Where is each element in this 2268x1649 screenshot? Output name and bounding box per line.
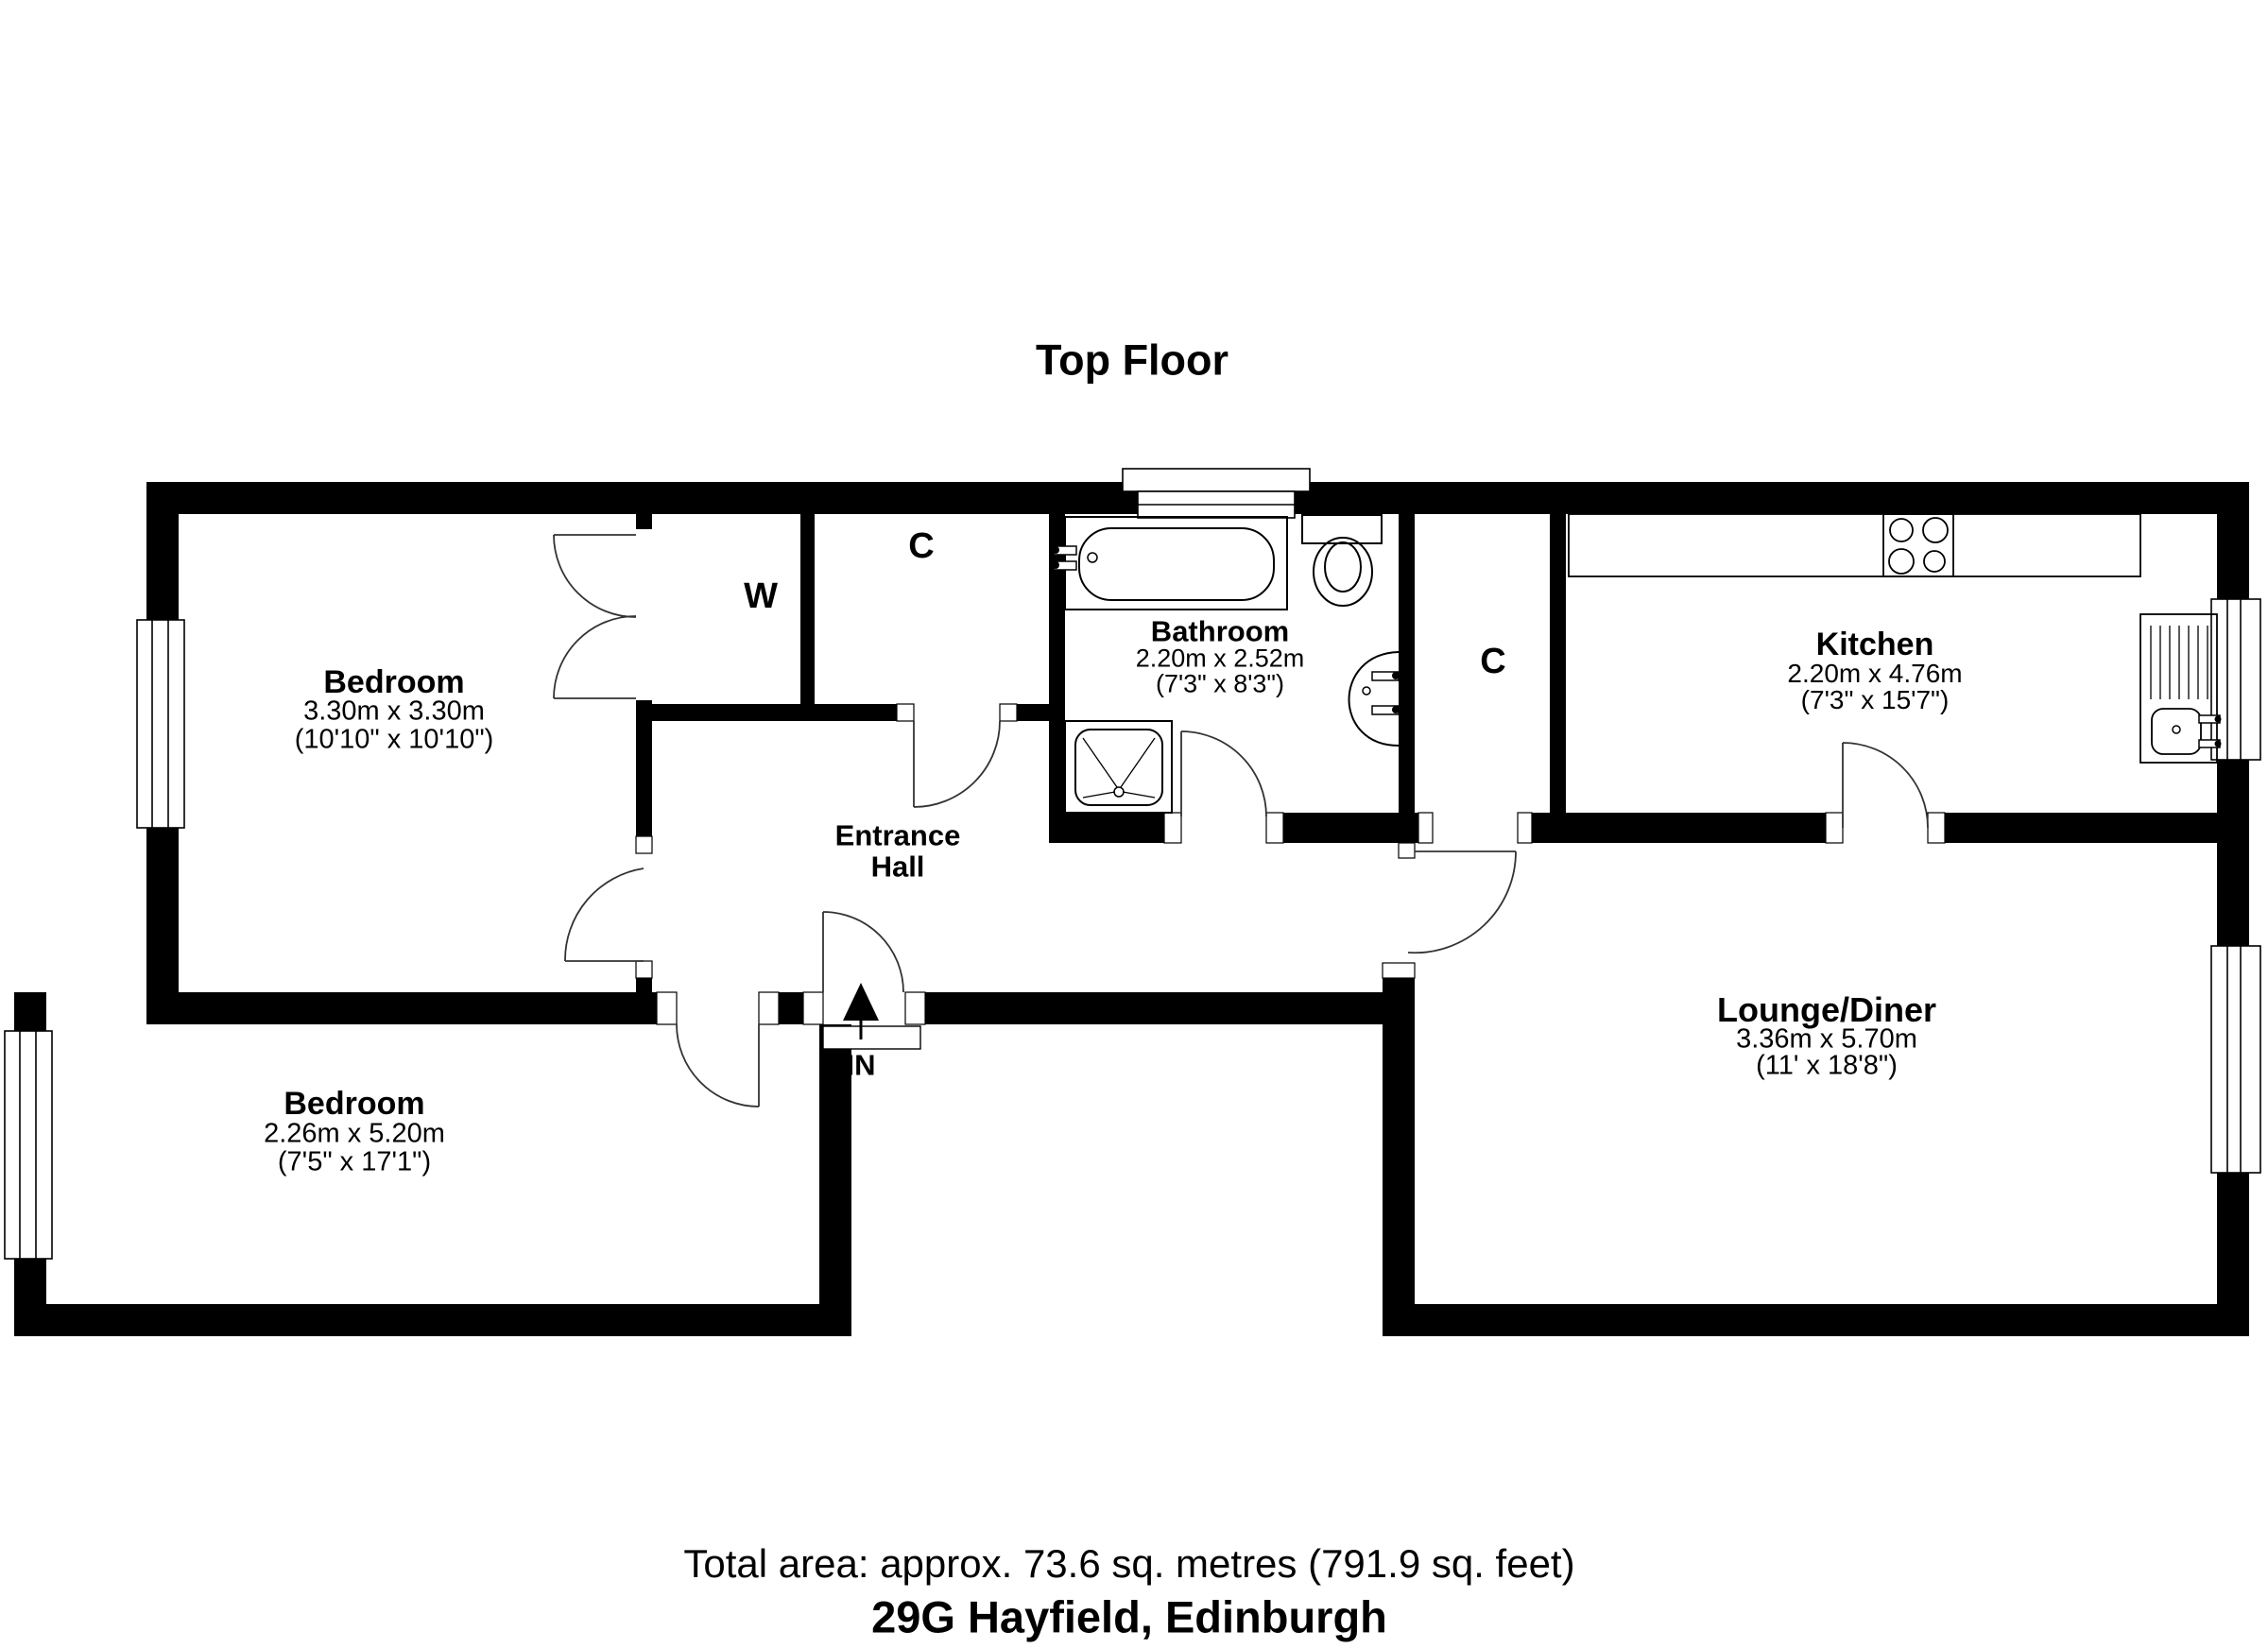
kitchen-imperial-dims: (7'3" x 15'7") bbox=[1801, 687, 1950, 713]
hall-name-line2: Hall bbox=[871, 852, 925, 882]
floor-plan-drawing bbox=[0, 0, 2268, 1649]
wardrobe-double-door-icon bbox=[554, 535, 636, 698]
bedroom2-door-icon bbox=[677, 1024, 759, 1107]
hob-icon bbox=[1883, 514, 1953, 576]
bedroom2-name: Bedroom bbox=[283, 1088, 424, 1120]
bedroom1-door-icon bbox=[565, 868, 644, 961]
bathroom-imperial-dims: (7'3" x 8'3") bbox=[1156, 672, 1284, 697]
closet2-label: C bbox=[1480, 644, 1505, 679]
bedroom1-window-icon bbox=[137, 620, 184, 828]
closet1-door-icon bbox=[914, 721, 1000, 807]
bedroom2-window-icon bbox=[5, 1031, 52, 1259]
entrance-door-icon bbox=[823, 912, 903, 992]
door-jambs bbox=[636, 704, 1945, 1024]
shower-icon bbox=[1065, 721, 1172, 813]
kitchen-window-icon bbox=[2211, 599, 2260, 760]
hall-name-line1: Entrance bbox=[835, 821, 961, 850]
bathroom-name: Bathroom bbox=[1151, 617, 1289, 646]
toilet-icon bbox=[1302, 515, 1382, 606]
kitchen-counter bbox=[1569, 514, 2140, 576]
bedroom2-metric-dims: 2.26m x 5.20m bbox=[264, 1121, 445, 1148]
kitchen-metric-dims: 2.20m x 4.76m bbox=[1787, 661, 1962, 687]
entrance-in-label: IN bbox=[847, 1051, 876, 1080]
closet1-label: C bbox=[908, 528, 934, 564]
kitchen-sink-icon bbox=[2140, 614, 2222, 763]
kitchen-name: Kitchen bbox=[1816, 628, 1934, 661]
lounge-door-icon bbox=[1408, 851, 1516, 953]
bedroom2-imperial-dims: (7'5" x 17'1") bbox=[278, 1149, 431, 1177]
address-text: 29G Hayfield, Edinburgh bbox=[871, 1595, 1387, 1640]
floor-plan-canvas: Top Floor Bedroom 3.30m x 3.30m (10'10" … bbox=[0, 0, 2268, 1649]
bathroom-metric-dims: 2.20m x 2.52m bbox=[1136, 646, 1305, 672]
lounge-name: Lounge/Diner bbox=[1717, 993, 1936, 1027]
page-title: Top Floor bbox=[1036, 339, 1228, 382]
wardrobe-label: W bbox=[744, 578, 778, 614]
lounge-window-icon bbox=[2211, 946, 2260, 1173]
bathtub-icon bbox=[1052, 517, 1287, 610]
bedroom1-imperial-dims: (10'10" x 10'10") bbox=[295, 727, 494, 754]
lounge-metric-dims: 3.36m x 5.70m bbox=[1736, 1026, 1917, 1054]
bathroom-window-icon bbox=[1123, 469, 1310, 518]
basin-icon bbox=[1349, 652, 1400, 746]
bathroom-door-icon bbox=[1181, 731, 1266, 816]
lounge-imperial-dims: (11' x 18'8") bbox=[1756, 1053, 1898, 1080]
bedroom1-metric-dims: 3.30m x 3.30m bbox=[303, 698, 485, 726]
kitchen-door-icon bbox=[1843, 743, 1928, 828]
bedroom1-name: Bedroom bbox=[323, 666, 464, 698]
total-area-text: Total area: approx. 73.6 sq. metres (791… bbox=[683, 1544, 1574, 1584]
